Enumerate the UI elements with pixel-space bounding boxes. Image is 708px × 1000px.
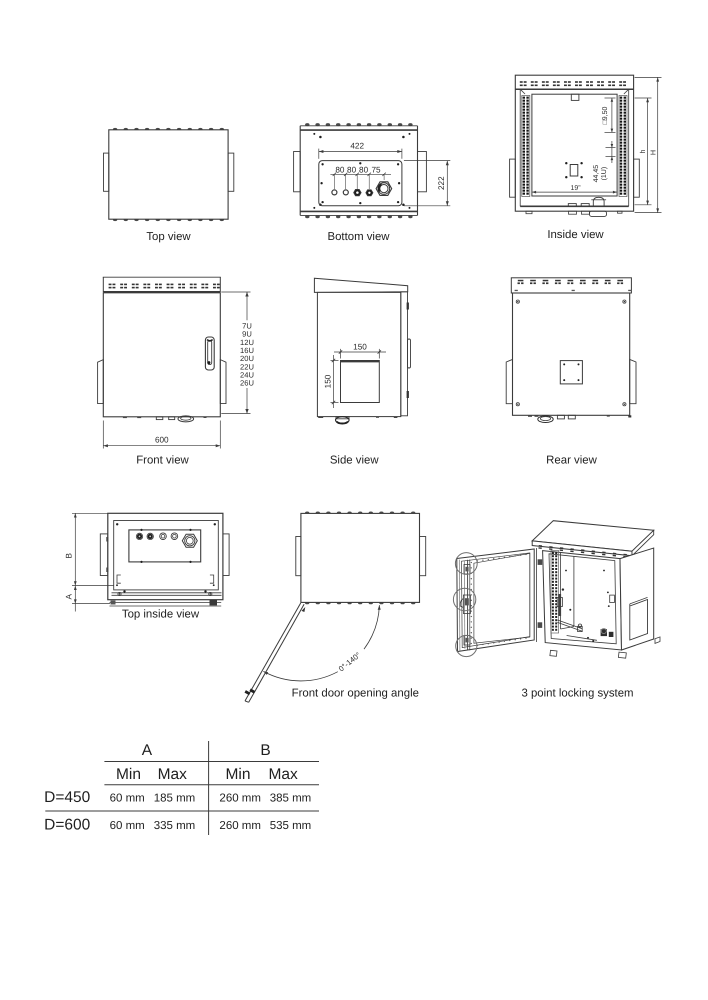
svg-text:Min: Min [116, 766, 141, 783]
svg-text:150: 150 [353, 343, 367, 352]
svg-text:Rear view: Rear view [546, 455, 597, 467]
svg-text:80: 80 [347, 165, 357, 174]
svg-text:D=450: D=450 [44, 789, 90, 806]
svg-text:80: 80 [335, 165, 345, 174]
svg-text:535 mm: 535 mm [270, 820, 312, 832]
svg-text:260 mm: 260 mm [219, 793, 261, 805]
svg-text:Top view: Top view [146, 231, 191, 243]
svg-text:Side view: Side view [330, 455, 380, 467]
svg-text:60 mm: 60 mm [110, 793, 145, 805]
svg-text:Top inside view: Top inside view [122, 608, 200, 620]
svg-text:Max: Max [158, 766, 188, 783]
svg-text:Bottom view: Bottom view [327, 231, 390, 243]
svg-text:150: 150 [323, 374, 332, 388]
svg-text:Inside view: Inside view [547, 229, 604, 241]
svg-text:44,45: 44,45 [593, 165, 600, 183]
svg-text:75: 75 [371, 165, 381, 174]
svg-text:H: H [648, 150, 657, 155]
svg-text:Front door opening angle: Front door opening angle [292, 687, 419, 699]
svg-text:60 mm: 60 mm [110, 820, 145, 832]
svg-text:A: A [64, 594, 73, 600]
svg-text:A: A [142, 742, 153, 759]
svg-text:□9,50: □9,50 [602, 106, 609, 124]
svg-text:422: 422 [350, 142, 364, 151]
svg-text:B: B [260, 742, 270, 759]
svg-text:185 mm: 185 mm [154, 793, 196, 805]
svg-text:(1U): (1U) [600, 167, 608, 181]
svg-text:3 point locking system: 3 point locking system [521, 687, 633, 699]
svg-text:26U: 26U [240, 379, 254, 388]
svg-text:335 mm: 335 mm [154, 820, 196, 832]
svg-text:600: 600 [155, 436, 169, 445]
svg-text:Max: Max [268, 766, 298, 783]
svg-text:0°-140°: 0°-140° [337, 650, 362, 673]
svg-text:B: B [64, 553, 73, 559]
svg-text:19”: 19” [570, 185, 581, 192]
svg-text:80: 80 [359, 165, 369, 174]
svg-text:222: 222 [437, 176, 446, 190]
svg-text:385 mm: 385 mm [270, 793, 312, 805]
svg-text:260 mm: 260 mm [219, 820, 261, 832]
svg-text:Front view: Front view [136, 455, 189, 467]
svg-text:h: h [638, 150, 647, 154]
svg-text:D=600: D=600 [44, 817, 90, 834]
svg-text:Min: Min [226, 766, 251, 783]
